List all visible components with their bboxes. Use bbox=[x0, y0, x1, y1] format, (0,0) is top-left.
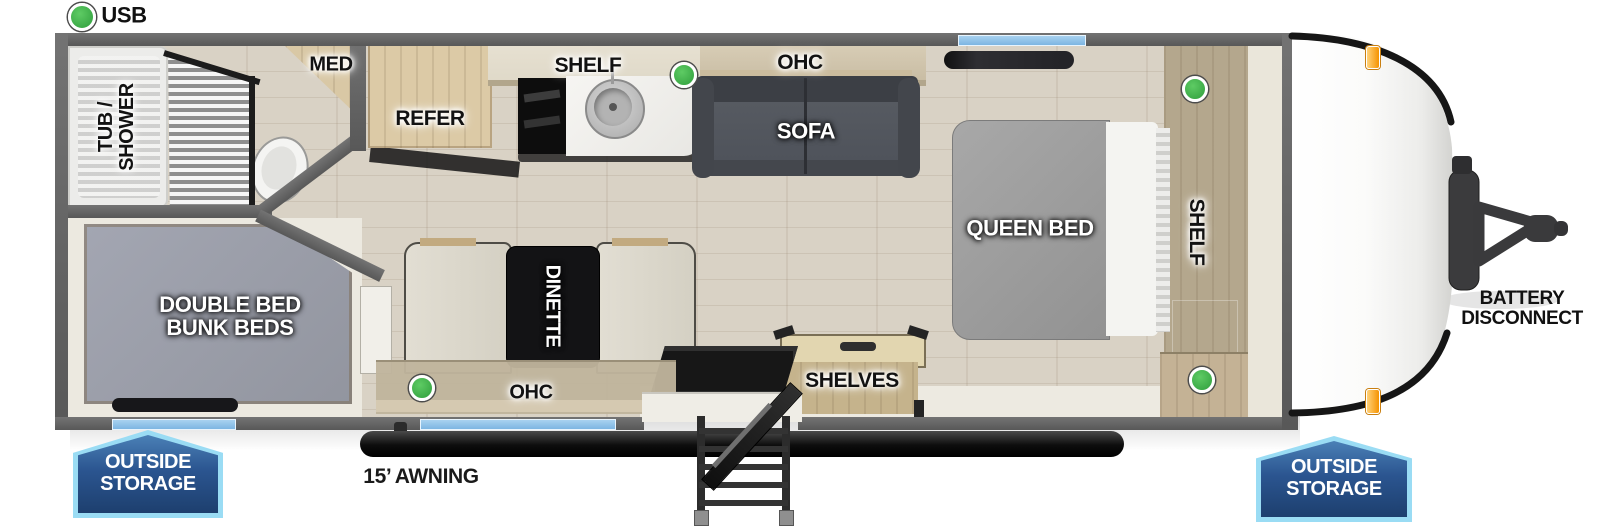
outside-storage-rear-line1: OUTSIDE bbox=[105, 452, 191, 474]
usb-dot-kitchen bbox=[671, 62, 697, 88]
marker-light-bottom bbox=[1366, 389, 1380, 414]
entry-step-foot-right bbox=[779, 510, 794, 526]
usb-dot-bedroom-top bbox=[1182, 76, 1208, 102]
refer-label: REFER bbox=[395, 108, 464, 130]
bunk-beds-label: DOUBLE BED BUNK BEDS bbox=[159, 293, 300, 339]
rv-floorplan: USB TUB / SHOWER MED REFER SHELF OHC SOF… bbox=[0, 0, 1600, 526]
bedroom-shelf-label: SHELF bbox=[1185, 199, 1207, 266]
shelves-label: SHELVES bbox=[805, 370, 899, 392]
dinette-label: DINETTE bbox=[542, 265, 563, 348]
usb-dot-bedroom-bottom bbox=[1189, 367, 1215, 393]
entry-step-foot-left bbox=[694, 510, 709, 526]
outside-storage-badge-rear-inner: OUTSIDE STORAGE bbox=[78, 435, 218, 513]
hitch-coupler bbox=[1524, 215, 1558, 242]
front-cap-body bbox=[1292, 33, 1454, 416]
outside-storage-front-line2: STORAGE bbox=[1286, 479, 1382, 501]
outside-storage-badge-front-inner: OUTSIDE STORAGE bbox=[1261, 441, 1407, 517]
queen-bed-label: QUEEN BED bbox=[966, 216, 1093, 239]
entry-step-rung-5 bbox=[699, 500, 788, 506]
tub-shower-label: TUB / SHOWER bbox=[96, 83, 138, 171]
usb-dot-dinette bbox=[409, 375, 435, 401]
dinette-ohc-label: OHC bbox=[509, 383, 552, 404]
awning-label: 15’ AWNING bbox=[363, 466, 478, 488]
battery-disconnect-label: BATTERY DISCONNECT bbox=[1461, 289, 1583, 329]
med-label: MED bbox=[309, 55, 352, 76]
kitchen-shelf-label: SHELF bbox=[555, 55, 622, 77]
sofa-label: SOFA bbox=[777, 119, 835, 142]
hitch-coupler-tip bbox=[1554, 221, 1568, 236]
usb-legend-dot bbox=[68, 3, 96, 31]
usb-legend-label: USB bbox=[101, 3, 146, 26]
tongue-jack-top bbox=[1452, 156, 1472, 174]
kitchen-ohc-label: OHC bbox=[777, 52, 822, 74]
outside-storage-front-line1: OUTSIDE bbox=[1291, 457, 1377, 479]
marker-light-top bbox=[1366, 46, 1380, 69]
outside-storage-rear-line2: STORAGE bbox=[100, 474, 196, 496]
